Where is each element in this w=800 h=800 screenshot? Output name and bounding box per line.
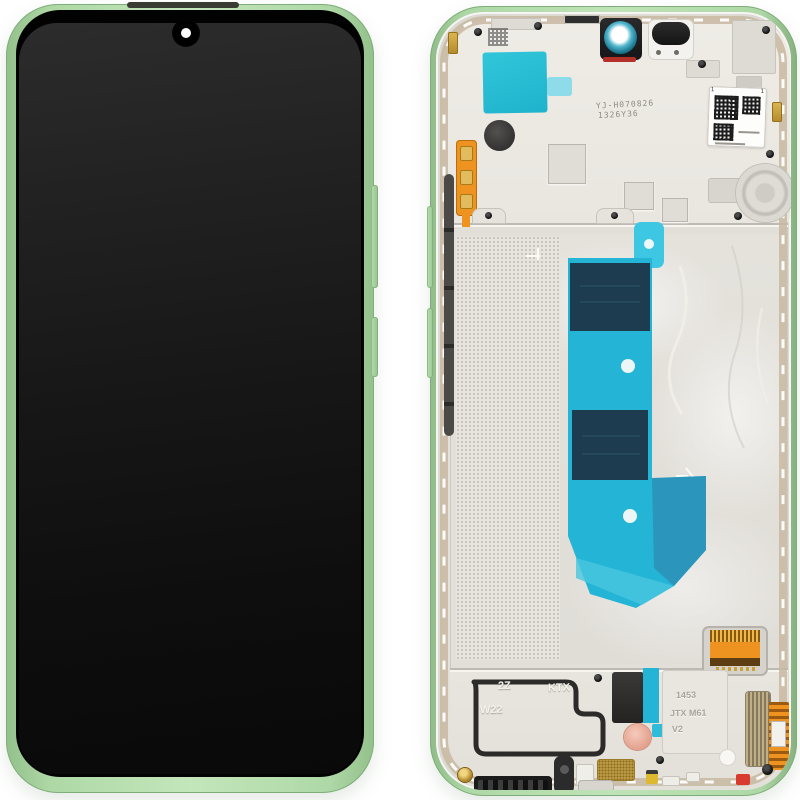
phone-front-view (6, 4, 374, 793)
qr-code-small (742, 96, 761, 115)
stamp-sim-b: JTX M61 (670, 708, 707, 719)
stamp-sim-c: V2 (672, 724, 683, 734)
screw (594, 674, 602, 682)
speaker-gasket-outline (474, 682, 603, 754)
screw (762, 26, 770, 34)
front-camera-lens (181, 28, 191, 38)
qr-label-mark-left: 1 (711, 87, 715, 93)
charging-port (578, 780, 614, 790)
speaker-grille (474, 776, 552, 790)
frame-back-view: 1 1 YJ-H070826 1326Y36 (430, 6, 797, 796)
camera-red-gasket (603, 57, 636, 62)
tape-pull-tab (547, 77, 572, 96)
vent-square (662, 198, 688, 222)
flex-gold-pad (460, 194, 473, 209)
microphone-grommet (554, 756, 574, 790)
front-camera-module (600, 18, 642, 60)
product-photo: 1 1 YJ-H070826 1326Y36 (0, 0, 800, 800)
sensor-dot (674, 50, 679, 55)
qr-label-mark-right: 1 (760, 89, 764, 95)
connector-dark-band (710, 658, 760, 666)
tape-end-strip (643, 668, 659, 723)
microphone-hole (560, 765, 569, 774)
earpiece-slot-back (564, 15, 600, 24)
screw (474, 28, 482, 36)
adhesive-disc (484, 120, 515, 151)
etched-qr-code (488, 28, 508, 46)
antenna-contact-left (448, 32, 458, 54)
micro-text-bar (715, 142, 745, 145)
flex-gold-pad (460, 170, 473, 185)
qr-code-bottom (713, 123, 734, 141)
vent-square (548, 144, 586, 184)
display-screen (16, 10, 364, 777)
sensor-window (652, 22, 690, 45)
screw (766, 150, 774, 158)
white-adhesive-dot (720, 750, 735, 765)
pink-adhesive-dot (624, 724, 651, 750)
camera-boss-ring (736, 164, 791, 222)
cyan-tape-square (482, 51, 547, 113)
antenna-contact-right (772, 102, 782, 122)
flex-gold-pad (460, 146, 473, 161)
connector-gold-fingers (710, 630, 760, 642)
power-button-back (427, 308, 433, 378)
foil-crease-line (669, 266, 686, 414)
sensor-dot (656, 50, 661, 55)
screw (656, 756, 664, 764)
stamp-speaker-b: KTX (548, 682, 570, 694)
stamp-speaker-a: 2Z (498, 680, 511, 692)
flex-micro-label (772, 722, 785, 746)
foil-crease-line (757, 308, 768, 404)
qr-code-large (714, 95, 739, 120)
earpiece-slit (127, 2, 239, 8)
vent-square (624, 182, 654, 210)
screw (611, 212, 618, 219)
stamp-speaker-c: W22 (480, 704, 503, 716)
front-camera-punch-hole (172, 19, 200, 47)
bottom-black-module (612, 672, 644, 723)
front-camera-lens (604, 21, 637, 54)
screw (534, 22, 542, 30)
bottom-clip (662, 776, 680, 786)
screw (734, 212, 742, 220)
display-panel (19, 23, 361, 774)
flex-cable-stem (462, 214, 470, 227)
gold-mesh-contact (598, 760, 634, 780)
qr-code-label: 1 1 (707, 86, 767, 148)
grille-slots (478, 780, 548, 790)
stamp-sim-a: 1453 (676, 690, 696, 700)
chassis: 1 1 YJ-H070826 1326Y36 (436, 12, 791, 790)
proximity-sensor-module (648, 19, 694, 60)
gold-screw (458, 768, 472, 782)
screw (762, 764, 773, 775)
bottom-clip (686, 772, 700, 782)
coil-antenna-strip (746, 692, 770, 766)
board-connector (646, 770, 658, 784)
power-button (371, 317, 378, 377)
side-key-bracket (444, 174, 454, 436)
micro-text-bar (738, 131, 759, 134)
red-seal-chip (736, 774, 750, 785)
volume-button-back (427, 206, 433, 288)
screw (698, 60, 706, 68)
volume-button (371, 185, 378, 288)
screw (485, 212, 492, 219)
foil-crease-line (729, 246, 744, 448)
side-key-flex-cable (456, 140, 477, 216)
